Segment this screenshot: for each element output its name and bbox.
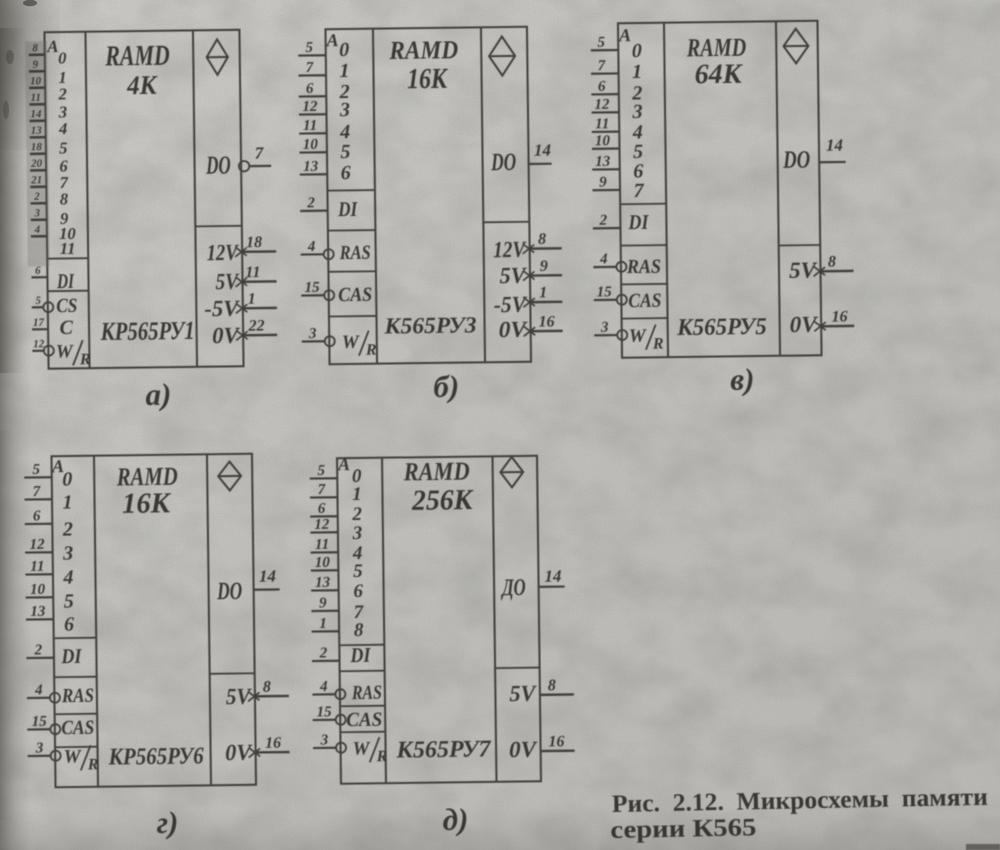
svg-text:15: 15 [32,714,48,730]
svg-text:в): в) [730,362,755,397]
svg-text:4: 4 [34,224,41,236]
svg-text:9: 9 [33,59,39,71]
svg-text:9: 9 [319,595,327,611]
svg-text:8: 8 [538,231,546,248]
svg-text:КР565РУ1: КР565РУ1 [100,316,195,346]
svg-text:R: R [376,748,388,765]
svg-text:1: 1 [539,284,547,301]
svg-text:11: 11 [245,264,260,281]
svg-text:2: 2 [319,645,328,661]
svg-text:14: 14 [534,140,551,159]
svg-text:10: 10 [30,75,42,87]
svg-text:3: 3 [600,320,609,336]
svg-text:0V: 0V [509,737,538,762]
svg-text:1: 1 [632,61,642,83]
svg-text:DI: DI [60,644,82,668]
svg-text:0: 0 [339,39,349,61]
svg-text:14: 14 [826,135,843,154]
svg-text:9: 9 [599,175,607,191]
svg-text:9: 9 [540,258,548,275]
svg-text:1: 1 [352,484,362,505]
svg-text:0: 0 [62,468,72,490]
svg-text:1: 1 [62,491,72,513]
svg-text:15: 15 [597,284,613,300]
svg-text:4: 4 [62,566,73,588]
svg-text:2: 2 [351,504,362,525]
svg-text:21: 21 [30,174,42,186]
svg-text:R: R [79,351,91,368]
svg-text:10: 10 [595,133,611,149]
svg-text:а): а) [145,377,171,412]
svg-text:4К: 4К [126,70,158,100]
svg-text:11: 11 [30,559,44,575]
svg-text:ДО: ДО [501,575,526,601]
svg-text:3: 3 [62,542,73,564]
svg-text:14: 14 [259,567,276,586]
svg-text:5V: 5V [509,681,537,706]
svg-text:16: 16 [538,313,554,330]
svg-text:CAS: CAS [346,709,382,731]
svg-text:8: 8 [32,42,38,54]
svg-text:13: 13 [303,159,319,175]
svg-text:0V: 0V [212,323,240,348]
svg-text:7: 7 [33,484,41,500]
svg-text:W: W [64,746,82,767]
svg-text:W: W [56,341,74,362]
svg-text:3: 3 [320,732,329,748]
svg-text:5: 5 [32,462,40,478]
svg-text:6: 6 [64,613,74,635]
svg-text:DO: DO [205,150,231,179]
svg-text:DI: DI [56,269,75,293]
svg-text:RAMD: RAMD [403,457,470,487]
svg-text:0: 0 [632,40,642,62]
svg-text:11: 11 [595,116,609,132]
svg-text:КР565РУ6: КР565РУ6 [108,743,204,770]
svg-text:К565РУ7: К565РУ7 [395,736,491,763]
svg-text:10: 10 [315,555,331,571]
svg-text:2: 2 [34,642,43,658]
svg-text:15: 15 [305,280,321,296]
svg-text:CAS: CAS [61,717,94,739]
svg-text:3: 3 [339,99,350,121]
svg-text:RAMD: RAMD [388,35,458,65]
svg-text:DI: DI [627,210,649,234]
svg-text:A: A [337,454,350,474]
svg-text:4: 4 [307,239,316,255]
svg-text:1: 1 [339,60,349,82]
svg-text:A: A [618,25,631,45]
svg-text:8: 8 [263,679,271,696]
svg-text:RAS: RAS [339,242,371,264]
svg-text:0: 0 [58,48,66,67]
svg-text:A: A [46,37,59,56]
svg-text:б): б) [433,369,459,404]
svg-text:11: 11 [303,118,317,134]
svg-text:11: 11 [315,537,329,553]
svg-text:12V: 12V [207,240,240,265]
svg-text:12: 12 [302,99,318,115]
svg-text:20: 20 [30,158,43,170]
svg-text:5: 5 [35,295,41,307]
svg-text:6: 6 [306,81,314,97]
svg-text:11: 11 [60,239,76,258]
svg-text:8: 8 [60,189,68,208]
svg-text:W: W [352,738,370,759]
svg-text:4: 4 [34,682,43,698]
svg-text:6: 6 [35,265,41,277]
svg-text:4: 4 [599,251,608,267]
svg-text:16: 16 [831,308,847,325]
svg-text:CS: CS [56,295,77,317]
svg-text:5: 5 [597,35,605,51]
svg-text:2: 2 [62,518,73,540]
svg-text:DI: DI [337,197,358,221]
svg-text:C: C [59,317,73,339]
svg-text:8: 8 [354,620,364,641]
svg-text:7: 7 [633,180,644,202]
svg-text:2: 2 [599,213,608,229]
svg-text:3: 3 [33,207,40,219]
svg-text:16: 16 [548,733,564,750]
svg-text:5: 5 [305,40,313,56]
svg-text:6: 6 [353,581,363,602]
svg-text:7: 7 [306,60,314,76]
svg-text:DO: DO [490,149,516,176]
svg-text:1: 1 [319,616,327,632]
svg-text:К565РУ5: К565РУ5 [676,314,767,341]
svg-text:DI: DI [349,643,371,667]
svg-text:RAS: RAS [351,682,382,704]
svg-text:8: 8 [548,677,556,694]
svg-text:2: 2 [57,84,66,103]
svg-text:RAS: RAS [626,256,661,278]
svg-text:R: R [365,342,377,359]
svg-text:12: 12 [29,537,45,553]
svg-text:3: 3 [352,523,363,544]
svg-text:17: 17 [33,317,45,329]
svg-text:2: 2 [33,191,40,203]
svg-text:256К: 256К [411,484,474,517]
svg-text:A: A [325,30,338,50]
svg-text:RAS: RAS [61,685,94,707]
svg-text:16: 16 [265,735,281,752]
svg-text:CAS: CAS [338,284,372,306]
svg-text:-5V: -5V [494,292,528,317]
svg-text:10: 10 [303,137,319,153]
svg-text:DO: DO [216,578,242,605]
svg-text:5: 5 [317,463,325,479]
svg-text:5: 5 [64,590,74,612]
svg-text:6: 6 [318,501,326,517]
svg-text:5: 5 [340,141,350,163]
svg-text:CAS: CAS [628,290,661,312]
svg-text:3: 3 [35,740,44,756]
svg-text:12: 12 [33,338,45,350]
svg-text:14: 14 [544,567,561,586]
svg-text:R: R [652,335,664,352]
svg-text:13: 13 [595,154,611,170]
svg-text:12V: 12V [493,237,527,262]
svg-text:13: 13 [31,125,43,137]
svg-text:3: 3 [308,326,317,342]
svg-text:1: 1 [248,291,256,308]
svg-text:7: 7 [598,58,606,74]
svg-text:6: 6 [598,79,606,95]
svg-text:5: 5 [353,561,363,582]
svg-text:0V: 0V [498,317,527,342]
svg-text:12: 12 [314,517,330,533]
svg-text:2: 2 [306,195,315,211]
svg-text:7: 7 [318,482,326,498]
svg-text:18: 18 [246,234,262,251]
svg-text:64К: 64К [694,59,743,91]
svg-text:RAMD: RAMD [104,40,170,73]
svg-text:13: 13 [30,604,46,620]
svg-text:6: 6 [341,162,351,184]
svg-text:4: 4 [319,679,328,695]
svg-text:R: R [87,756,99,773]
svg-text:15: 15 [317,704,333,720]
svg-text:0V: 0V [790,312,819,337]
svg-text:12: 12 [594,97,610,113]
svg-text:5: 5 [59,138,67,157]
svg-text:4: 4 [339,121,350,143]
svg-text:13: 13 [315,575,331,591]
svg-text:16К: 16К [407,63,448,95]
svg-text:W: W [342,332,360,353]
svg-text:0V: 0V [225,740,253,765]
svg-text:3: 3 [631,101,642,123]
svg-text:д): д) [442,802,468,837]
svg-text:11: 11 [30,92,41,104]
svg-text:4: 4 [58,119,67,138]
svg-text:5V: 5V [215,269,239,294]
svg-text:W: W [629,326,647,347]
svg-text:DO: DO [782,147,810,174]
svg-text:10: 10 [30,582,46,598]
svg-text:5V: 5V [226,684,252,709]
svg-text:г): г) [156,805,178,840]
svg-text:6: 6 [33,508,41,524]
svg-text:8: 8 [828,254,836,271]
svg-text:22: 22 [247,318,264,335]
svg-text:серии К565: серии К565 [610,814,756,844]
svg-text:14: 14 [30,108,42,120]
svg-text:5V: 5V [499,263,527,288]
svg-text:5V: 5V [789,258,818,283]
svg-text:18: 18 [31,141,43,153]
svg-text:К565РУ3: К565РУ3 [383,312,476,338]
svg-text:-5V: -5V [204,296,240,321]
svg-text:16К: 16К [122,487,172,520]
